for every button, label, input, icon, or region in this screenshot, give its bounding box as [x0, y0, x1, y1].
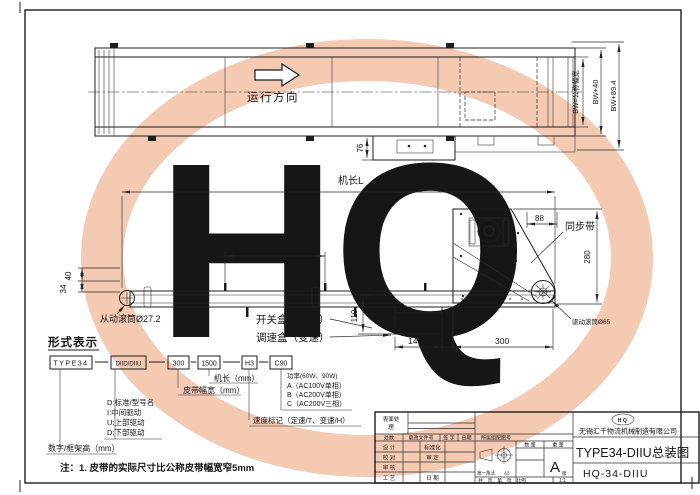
dim-bw894: BW+89.4	[609, 80, 618, 111]
dim-cleat-spacing: 挡条间距300	[252, 239, 300, 249]
dim-40: 40	[64, 271, 73, 280]
tb-field-design: 设 计	[383, 444, 396, 452]
form-box-h3: H3	[245, 361, 254, 368]
form-length-label: 机长（mm）	[214, 373, 259, 383]
drawing-number: HQ-34-DIIU	[583, 468, 648, 480]
form-speed-label: 速度标记（定速/T、变速/H）	[253, 415, 350, 425]
hq-watermark: HQ	[102, 60, 632, 456]
direction-label: 运行方向	[247, 90, 299, 104]
tb-header-4: 日期	[461, 436, 471, 442]
tb-field-date: 日 期	[426, 475, 439, 482]
label-switch-box: 开关盒（定速）	[256, 313, 330, 326]
tb-revision: A	[550, 459, 560, 476]
drawing-sheet: HQ 运行方向	[0, 0, 700, 495]
form-title: 形式表示	[48, 335, 98, 349]
tb-surface-1: 表面处	[383, 415, 400, 423]
form-legend-2: I:中间驱动	[107, 407, 142, 417]
dim-machine-length: 机长L	[338, 174, 364, 187]
tb-assembly-no-label: 所属组配图号	[481, 435, 511, 442]
tb-field-review: 审 核	[383, 464, 396, 472]
form-box-300: 300	[173, 361, 185, 368]
watermark-text: HQ	[157, 111, 524, 390]
form-power-b: B（AC200V单相）	[287, 390, 346, 399]
dim-110: 110	[350, 309, 359, 322]
form-box-type34: TYPE34	[53, 361, 88, 368]
tb-surface-2: 理	[388, 424, 394, 431]
drawing-title: TYPE34-DIIU总装图	[576, 446, 689, 460]
form-power-a: A（AC100V单相）	[287, 381, 346, 390]
label-speed-box: 调速盒（变速）	[256, 331, 330, 344]
dim-88: 88	[535, 214, 544, 223]
dim-34b: 34	[441, 336, 451, 346]
tb-revision-suffix: 版	[562, 470, 567, 477]
label-timing-belt: 同步带	[565, 221, 595, 233]
dim-bw40: BW+40	[591, 80, 600, 105]
dim-300: 300	[495, 336, 509, 346]
form-power-c: C（AC200V三相）	[287, 399, 346, 408]
tb-header-2: 更改文件号	[408, 435, 433, 442]
tb-pages-row: 共 页 第 页 比例	[478, 477, 526, 484]
form-box-c90: C90	[275, 361, 288, 368]
form-legend-1: D:标准/型号名	[107, 397, 154, 407]
dim-140: 140	[408, 336, 422, 346]
tb-projection-label: 第一角法	[477, 470, 495, 477]
form-box-1500: 1500	[201, 361, 217, 368]
cad-drawing: HQ 运行方向	[0, 0, 700, 495]
form-legend-3: U:上部驱动	[107, 417, 145, 427]
tb-field-check: 校 对	[383, 454, 396, 462]
tb-qty-label: 数 量	[524, 442, 535, 449]
tb-scale: 1:1	[559, 478, 566, 484]
form-power-0: 功率(60W、90W)	[287, 371, 338, 380]
tb-header-1: 处数	[384, 435, 394, 442]
tb-header-3: 签 字	[443, 435, 454, 442]
form-frame-label: 数字/框架高（mm）	[48, 443, 120, 453]
dim-bw: BW=公称幅宽	[571, 70, 580, 113]
dim-34: 34	[59, 284, 68, 293]
tb-field-process: 工 艺	[383, 475, 396, 482]
tb-sheet-size: A3	[504, 471, 510, 476]
tb-field-standard: 标准化	[424, 444, 441, 452]
form-note: 注：1. 皮带的实际尺寸比公称皮带幅宽窄5mm	[60, 462, 254, 474]
label-drive-roller: 驱动滚筒Ø65	[572, 317, 611, 326]
company-logo-text: HQ	[618, 418, 629, 424]
tb-weight-label: 重 量	[552, 442, 563, 449]
company-name: 无锡汇千物流机械制造有限公司	[579, 427, 677, 436]
form-legend-4: D:下部驱动	[107, 427, 145, 437]
label-driven-roller: 从动滚筒Ø27.2	[100, 313, 161, 324]
dim-76: 76	[356, 143, 365, 152]
form-width-label: 皮带幅宽（mm）	[183, 385, 244, 395]
tb-field-approve: 审 定	[426, 454, 439, 462]
dim-280: 280	[583, 250, 592, 264]
form-box-diid: DIID/DIIU	[116, 362, 142, 368]
